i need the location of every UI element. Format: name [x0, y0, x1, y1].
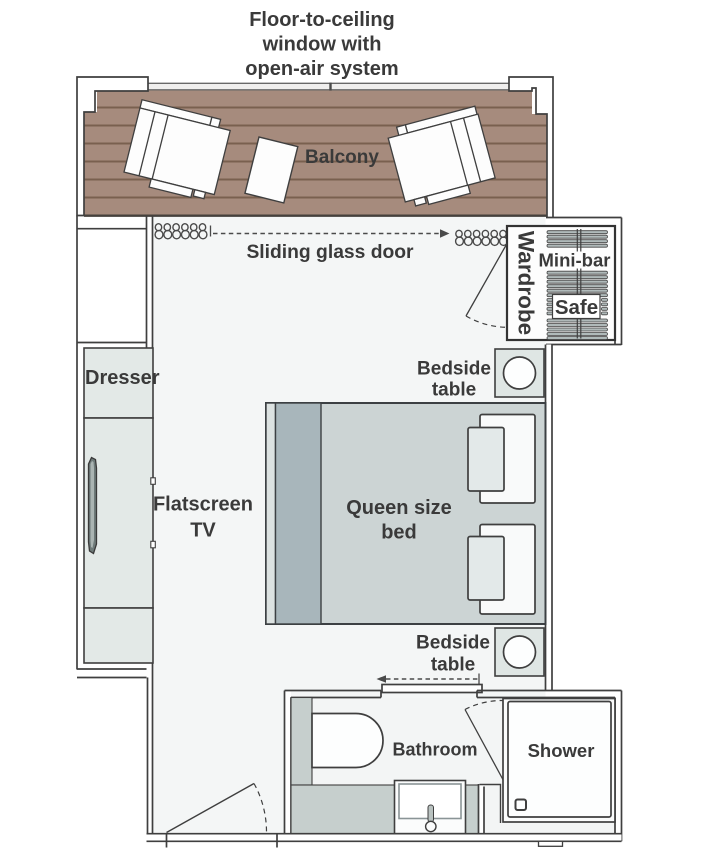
svg-text:Flatscreen: Flatscreen [153, 494, 253, 516]
svg-text:open-air system: open-air system [245, 58, 398, 80]
svg-text:table: table [431, 655, 475, 676]
svg-text:Wardrobe: Wardrobe [514, 231, 539, 335]
svg-text:table: table [432, 380, 476, 401]
svg-text:Shower: Shower [528, 740, 595, 761]
svg-text:window with: window with [262, 34, 382, 56]
svg-text:Floor-to-ceiling: Floor-to-ceiling [249, 9, 395, 31]
svg-text:Dresser: Dresser [85, 367, 160, 389]
svg-text:Queen size: Queen size [346, 497, 452, 519]
svg-text:Bathroom: Bathroom [393, 740, 478, 760]
svg-text:Balcony: Balcony [305, 147, 379, 168]
svg-text:bed: bed [381, 522, 417, 544]
svg-text:Bedside: Bedside [416, 633, 490, 654]
svg-text:Safe: Safe [555, 296, 598, 319]
svg-text:Bedside: Bedside [417, 359, 491, 380]
svg-text:Sliding glass door: Sliding glass door [246, 242, 414, 263]
svg-text:TV: TV [190, 520, 216, 542]
svg-text:Mini-bar: Mini-bar [539, 250, 611, 271]
